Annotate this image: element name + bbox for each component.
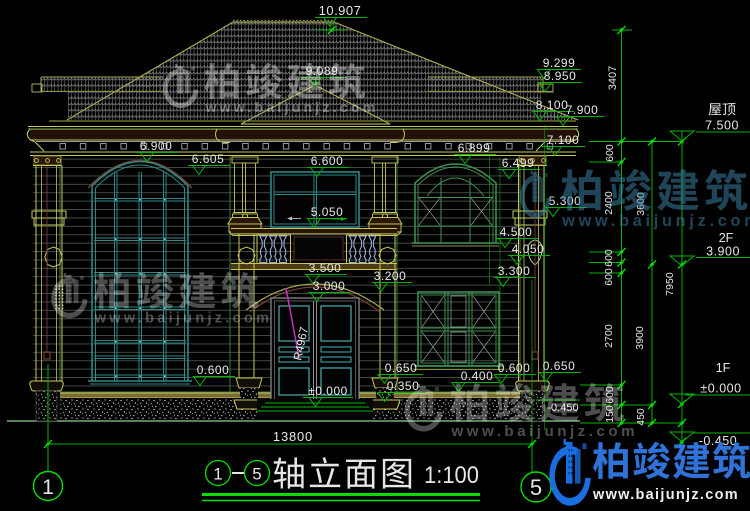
svg-text:1F: 1F	[716, 361, 731, 375]
svg-text:3.300: 3.300	[498, 264, 531, 278]
svg-text:4.500: 4.500	[500, 225, 533, 239]
svg-text:6.899: 6.899	[458, 141, 491, 155]
svg-text:6.605: 6.605	[192, 152, 225, 166]
svg-text:13800: 13800	[273, 429, 313, 444]
svg-text:±0.000: ±0.000	[700, 382, 741, 396]
svg-text:www.baijunjz.com: www.baijunjz.com	[592, 487, 739, 503]
svg-text:7.900: 7.900	[566, 103, 599, 117]
svg-text:9.299: 9.299	[543, 56, 576, 70]
svg-text:0.650: 0.650	[543, 359, 576, 373]
svg-text:0.600: 0.600	[197, 363, 230, 377]
svg-text:1:100: 1:100	[424, 462, 479, 489]
svg-text:3900: 3900	[634, 326, 646, 350]
svg-text:600: 600	[603, 249, 615, 267]
svg-text:0.400: 0.400	[461, 369, 494, 383]
svg-text:3.500: 3.500	[309, 261, 342, 275]
svg-text:600: 600	[603, 268, 615, 286]
svg-text:3.200: 3.200	[374, 269, 407, 283]
svg-text:7950: 7950	[664, 272, 676, 296]
svg-text:3407: 3407	[607, 66, 619, 90]
svg-text:2F: 2F	[719, 231, 734, 245]
svg-text:600: 600	[604, 144, 616, 162]
svg-text:1: 1	[213, 465, 222, 484]
svg-text:1: 1	[42, 476, 54, 499]
svg-text:7.500: 7.500	[705, 119, 739, 133]
svg-text:7.100: 7.100	[547, 133, 580, 147]
svg-text:6.900: 6.900	[140, 139, 173, 153]
svg-text:6.499: 6.499	[502, 156, 535, 170]
svg-text:0.650: 0.650	[385, 361, 418, 375]
svg-text:www.baijunjz.com: www.baijunjz.com	[94, 310, 273, 326]
svg-text:www.baijunjz.com: www.baijunjz.com	[450, 423, 638, 440]
svg-text:0.600: 0.600	[498, 361, 531, 375]
svg-text:3.000: 3.000	[313, 279, 346, 293]
svg-text:6.600: 6.600	[311, 154, 344, 168]
svg-text:8.950: 8.950	[544, 69, 577, 83]
svg-text:www.baijunjz.com: www.baijunjz.com	[561, 212, 750, 230]
svg-text:0.350: 0.350	[387, 379, 420, 393]
svg-text:5.050: 5.050	[311, 205, 344, 219]
svg-text:4.050: 4.050	[512, 242, 545, 256]
svg-text:www.baijunjz.com: www.baijunjz.com	[205, 99, 379, 115]
svg-text:5: 5	[530, 475, 542, 500]
svg-text:5: 5	[252, 465, 261, 484]
svg-text:3.900: 3.900	[706, 245, 740, 259]
svg-text:±0.000: ±0.000	[308, 384, 348, 398]
svg-text:2700: 2700	[603, 324, 615, 348]
svg-text:10.907: 10.907	[319, 3, 362, 18]
svg-text:8.100: 8.100	[536, 98, 569, 112]
